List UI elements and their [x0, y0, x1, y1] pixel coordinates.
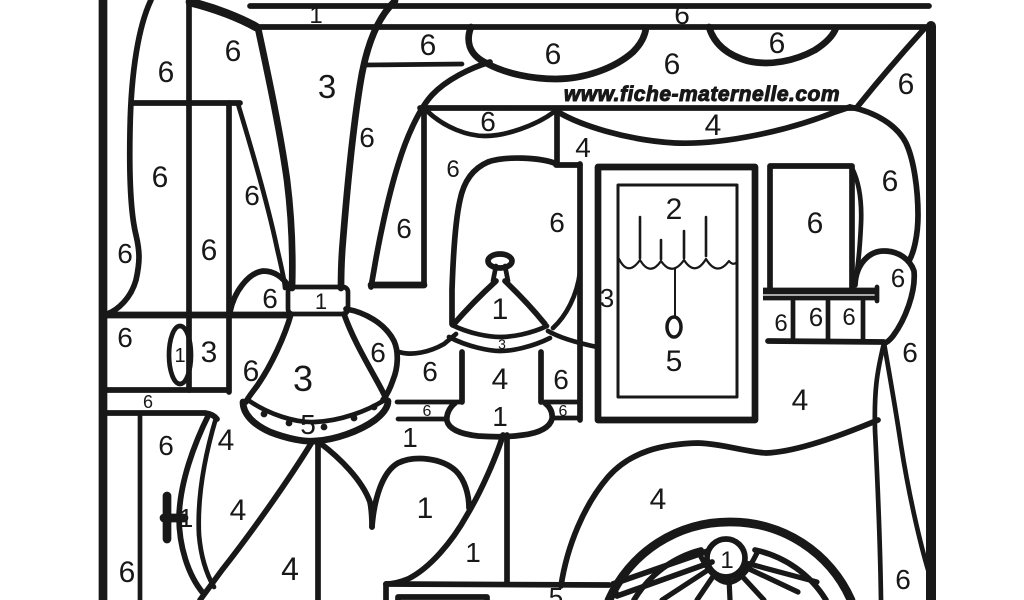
svg-text:6: 6	[809, 302, 823, 332]
svg-text:5: 5	[549, 582, 563, 600]
svg-text:6: 6	[423, 403, 432, 420]
svg-text:2: 2	[666, 193, 683, 226]
svg-text:6: 6	[117, 322, 133, 353]
svg-text:6: 6	[396, 213, 412, 244]
svg-text:6: 6	[902, 337, 918, 368]
svg-text:1: 1	[492, 401, 508, 432]
svg-text:6: 6	[898, 68, 915, 101]
svg-text:3: 3	[318, 68, 336, 105]
svg-text:1: 1	[465, 537, 481, 568]
svg-text:4: 4	[230, 494, 247, 527]
svg-text:6: 6	[422, 356, 438, 387]
svg-text:6: 6	[446, 156, 459, 183]
svg-text:6: 6	[201, 234, 218, 267]
svg-text:4: 4	[492, 363, 509, 396]
svg-text:6: 6	[807, 207, 824, 240]
svg-text:6: 6	[262, 283, 278, 314]
svg-text:4: 4	[792, 384, 809, 417]
svg-text:1: 1	[174, 345, 185, 367]
svg-text:3: 3	[600, 283, 614, 313]
svg-text:6: 6	[244, 180, 260, 211]
svg-text:3: 3	[201, 336, 218, 369]
svg-text:6: 6	[545, 38, 562, 71]
svg-text:6: 6	[370, 337, 386, 368]
svg-text:6: 6	[143, 392, 153, 412]
svg-text:6: 6	[158, 430, 174, 461]
svg-text:6: 6	[549, 207, 565, 238]
svg-text:5: 5	[666, 345, 683, 378]
svg-text:1: 1	[315, 289, 327, 314]
svg-text:3: 3	[498, 336, 506, 352]
svg-text:6: 6	[119, 556, 136, 589]
svg-text:1: 1	[402, 422, 418, 453]
svg-text:6: 6	[559, 403, 568, 420]
svg-text:1: 1	[492, 293, 509, 326]
svg-text:4: 4	[650, 483, 667, 516]
svg-text:6: 6	[225, 35, 242, 68]
svg-text:4: 4	[218, 424, 235, 457]
svg-text:www.fiche-maternelle.com: www.fiche-maternelle.com	[564, 83, 840, 106]
svg-text:1: 1	[417, 492, 434, 525]
svg-text:6: 6	[882, 165, 899, 198]
svg-text:6: 6	[420, 29, 437, 62]
svg-text:6: 6	[664, 48, 681, 81]
svg-text:6: 6	[895, 564, 911, 595]
svg-text:6: 6	[553, 364, 569, 395]
svg-text:6: 6	[152, 161, 169, 194]
svg-text:6: 6	[674, 0, 690, 30]
svg-text:1: 1	[179, 503, 193, 533]
svg-text:4: 4	[281, 551, 299, 587]
svg-text:6: 6	[842, 304, 855, 331]
svg-text:1: 1	[309, 2, 322, 29]
svg-text:6: 6	[243, 355, 260, 388]
svg-text:6: 6	[117, 238, 133, 269]
svg-text:6: 6	[359, 122, 375, 153]
svg-text:6: 6	[769, 27, 786, 60]
svg-text:6: 6	[480, 106, 496, 137]
svg-text:1: 1	[720, 547, 733, 574]
svg-text:4: 4	[705, 109, 722, 142]
svg-text:5: 5	[300, 409, 316, 440]
svg-text:6: 6	[891, 263, 905, 293]
svg-text:3: 3	[293, 358, 313, 399]
svg-text:4: 4	[575, 132, 591, 163]
svg-text:6: 6	[158, 56, 175, 89]
svg-text:6: 6	[774, 310, 787, 337]
